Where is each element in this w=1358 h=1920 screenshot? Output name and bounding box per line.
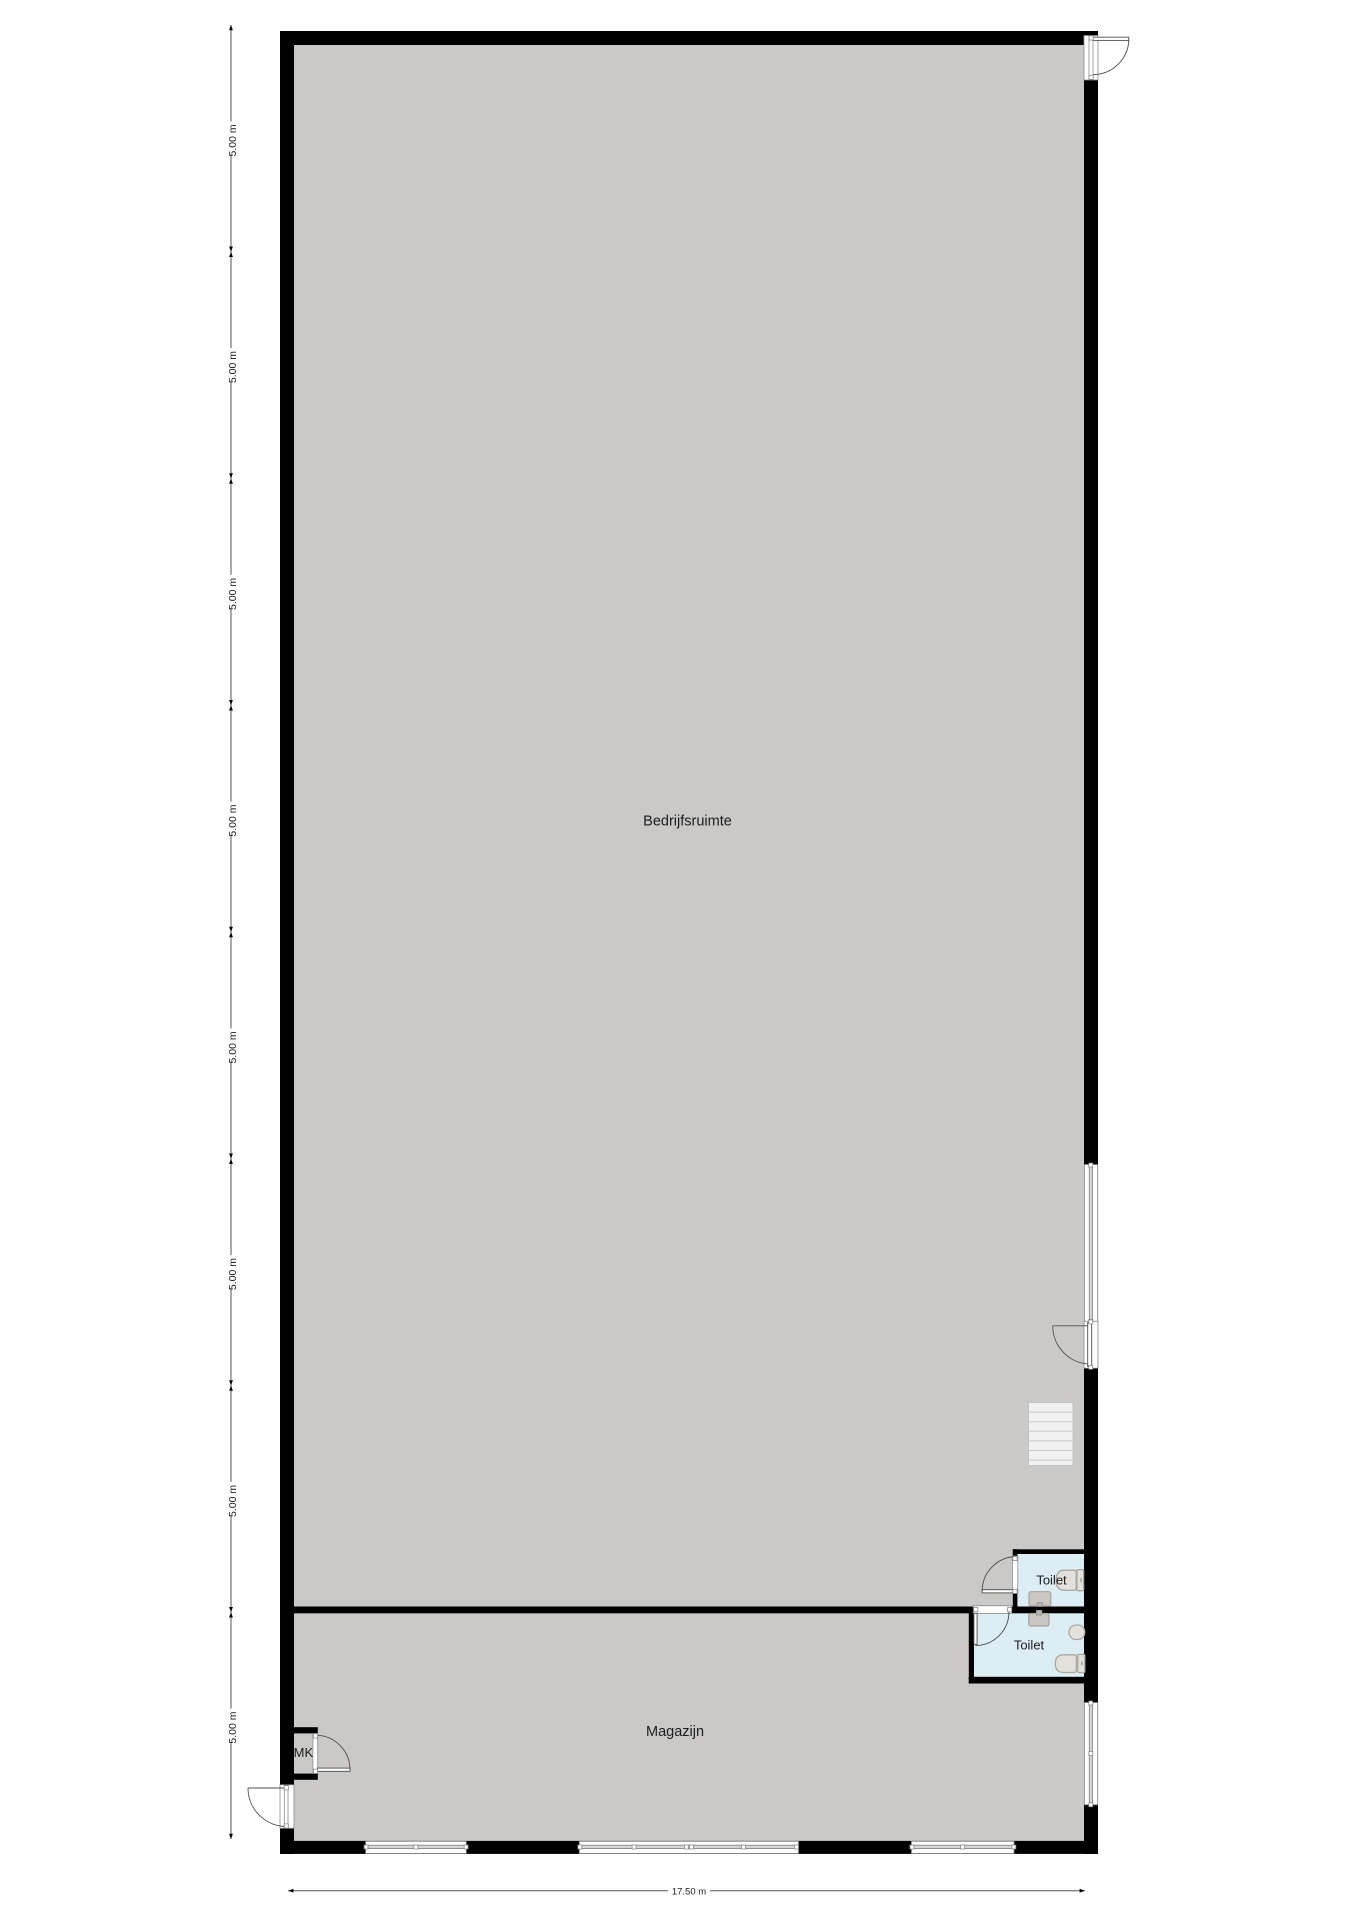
svg-text:17.50 m: 17.50 m [672, 1887, 706, 1898]
svg-text:5.00 m: 5.00 m [227, 1711, 239, 1743]
svg-text:5.00 m: 5.00 m [227, 1485, 239, 1517]
svg-text:Toilet: Toilet [1014, 1638, 1045, 1653]
svg-text:MK: MK [294, 1745, 314, 1760]
svg-text:5.00 m: 5.00 m [227, 1258, 239, 1290]
svg-text:Magazijn: Magazijn [646, 1724, 704, 1740]
svg-text:5.00 m: 5.00 m [227, 1031, 239, 1063]
svg-text:Bedrijfsruimte: Bedrijfsruimte [643, 813, 732, 829]
svg-text:5.00 m: 5.00 m [227, 804, 239, 836]
svg-text:Toilet: Toilet [1036, 1573, 1067, 1588]
svg-text:5.00 m: 5.00 m [227, 351, 239, 383]
svg-text:5.00 m: 5.00 m [227, 124, 239, 156]
svg-text:5.00 m: 5.00 m [227, 578, 239, 610]
